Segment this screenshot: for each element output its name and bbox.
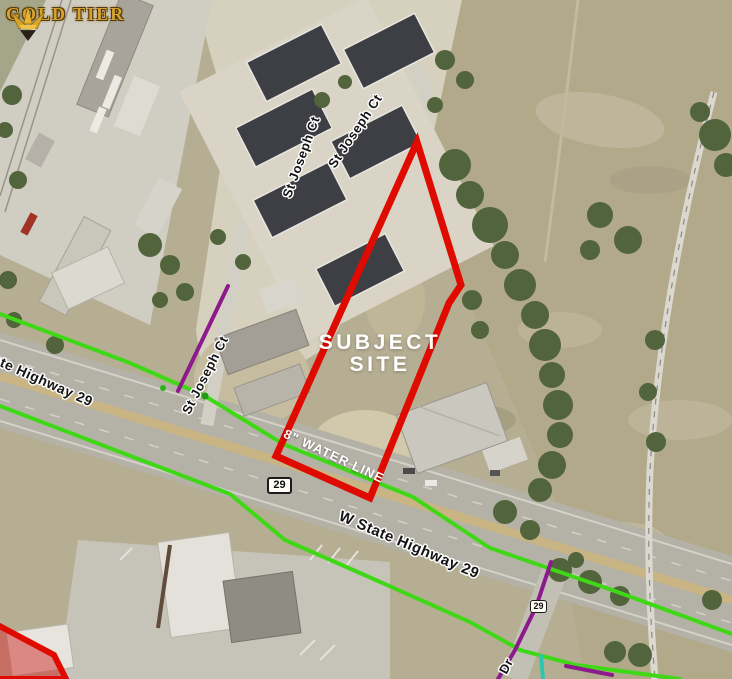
adjacent-parcel-boundary: [0, 622, 66, 679]
crown-icon: [6, 4, 50, 42]
water-line-south: [0, 406, 680, 679]
utility-line-teal: [541, 656, 543, 679]
water-line-node: [160, 385, 166, 391]
highway-29-shield: 29: [267, 477, 292, 494]
subject-site-label: SUBJECT SITE: [294, 332, 466, 376]
gold-tier-logo: GOLD TIER: [6, 4, 125, 25]
map-viewport: St Joseph Ct St Joseph Ct St Joseph Ct S…: [0, 0, 732, 679]
highway-29-shield-2: 29: [530, 600, 547, 613]
